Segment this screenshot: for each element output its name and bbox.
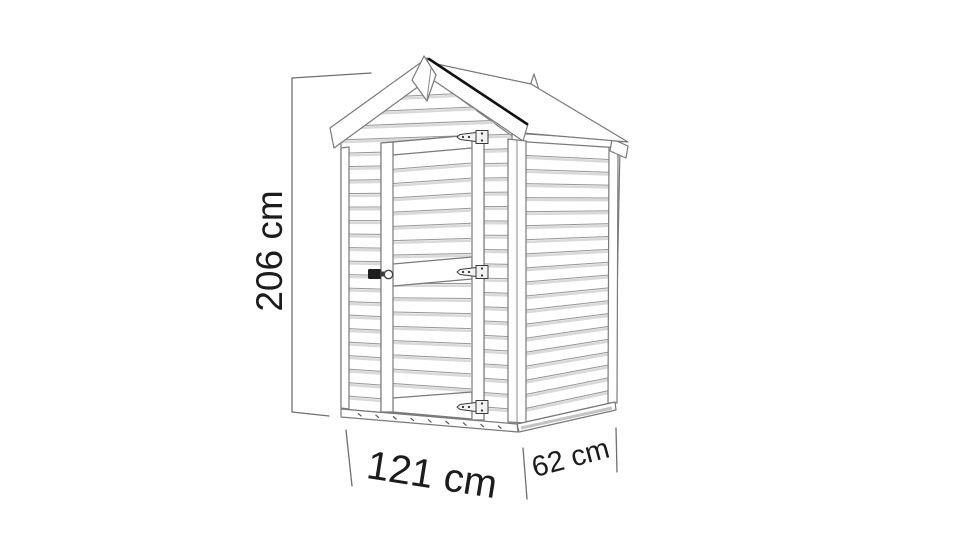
depth-dimension-label: 62 cm	[528, 433, 613, 484]
width-dimension-label: 121 cm	[364, 443, 500, 507]
door-lock	[368, 269, 393, 279]
left-corner-trim	[341, 147, 349, 409]
shed-dimension-diagram-page: 206 cm 121 cm 62 cm	[0, 0, 960, 540]
shed-door	[368, 131, 488, 421]
front-corner-post	[508, 139, 526, 423]
width-dimension: 121 cm	[346, 430, 527, 507]
back-corner-trim	[608, 146, 618, 403]
height-dimension-label: 206 cm	[249, 190, 290, 311]
shed-line-drawing: 206 cm 121 cm 62 cm	[0, 0, 960, 540]
shed-side-wall	[517, 141, 620, 424]
depth-dimension: 62 cm	[528, 428, 617, 484]
